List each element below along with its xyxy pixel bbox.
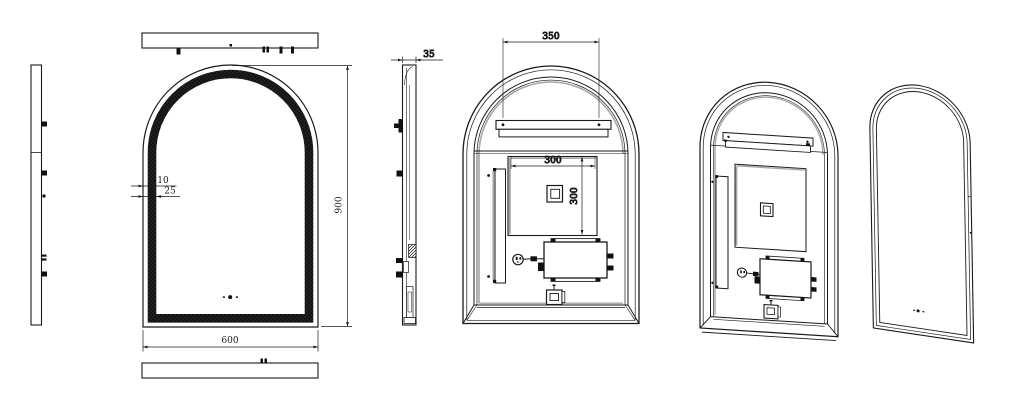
view-front-iso [869,78,974,343]
view-side-profile-hardware [31,65,47,325]
dim-frame-offset-label: 10 [157,176,169,186]
dimension-depth [391,57,443,64]
side-view-brackets [394,119,403,278]
dim-width-label: 600 [221,336,238,346]
mounting-tabs [42,122,48,277]
view-top-profile [142,33,318,55]
dim-hanger-width-label: 350 [542,32,559,42]
junction-box [547,186,563,203]
dim-led-band-label: 25 [164,187,176,197]
dim-backplate-width-label: 300 [544,156,561,166]
dim-height-label: 900 [335,196,345,213]
view-back-iso [700,78,838,341]
side-hatched-block [409,245,417,258]
iso-left-bracket [711,175,728,289]
view-front: 10 25 900 600 [131,65,352,352]
view-back: 350 300 300 [463,32,639,324]
bottom-strip-tabs [261,359,268,364]
iso-driver-box [755,255,817,301]
drawing-canvas: 10 25 900 600 [0,0,1017,420]
technical-drawing-sheet: 10 25 900 600 [0,0,1017,420]
dim-backplate-height-label: 300 [570,187,580,204]
view-bottom-profile [142,359,318,379]
hanging-bar [496,121,611,137]
front-iso-outline [869,78,974,343]
view-side: 35 [391,50,443,325]
iso-junction-box [761,203,774,217]
dim-depth-label: 35 [423,50,435,60]
driver-box [538,239,614,282]
